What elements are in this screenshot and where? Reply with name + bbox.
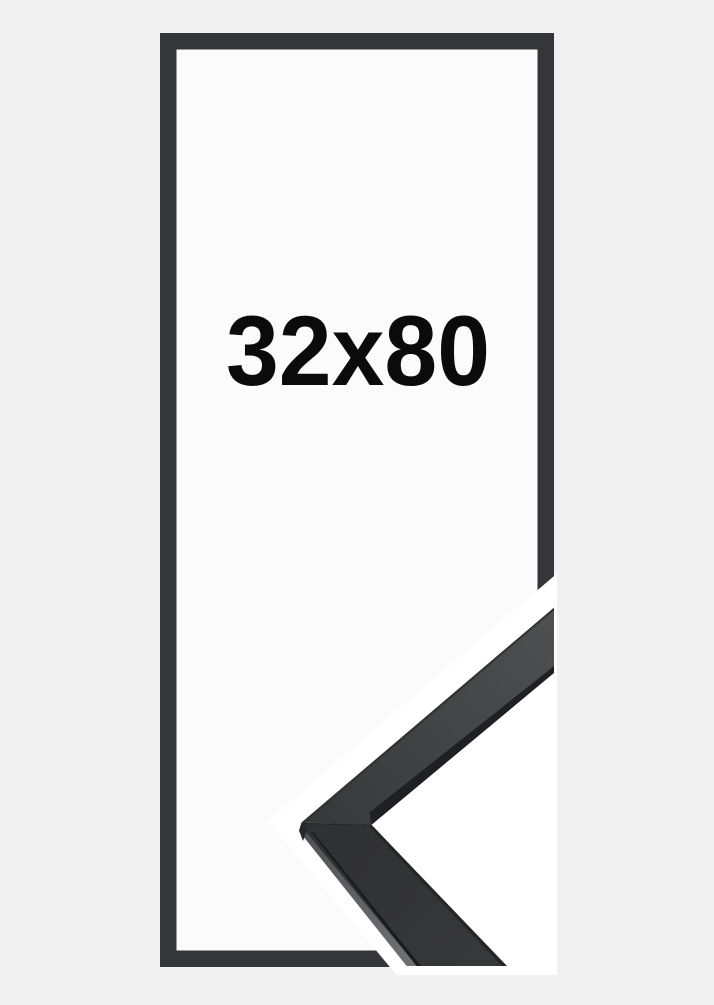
svg-text:32x80: 32x80: [226, 295, 490, 406]
